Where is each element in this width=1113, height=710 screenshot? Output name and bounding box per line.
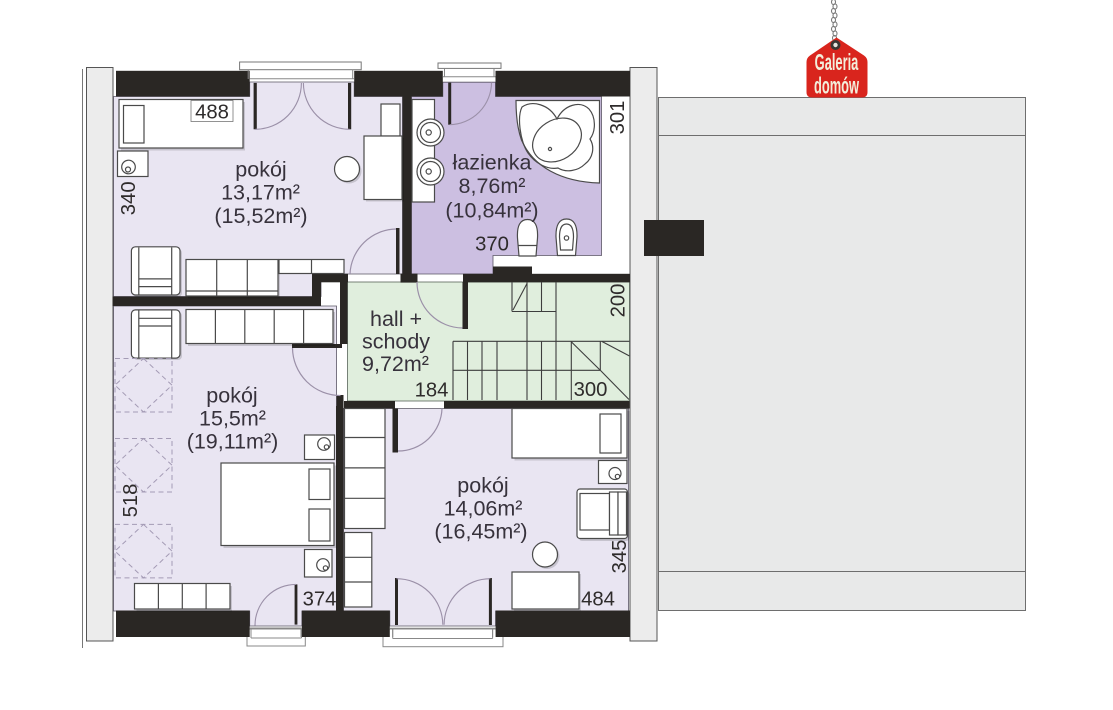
svg-text:łazienka: łazienka <box>453 151 532 175</box>
svg-text:pokój: pokój <box>235 158 286 182</box>
svg-text:8,76m²: 8,76m² <box>459 174 526 198</box>
svg-text:345: 345 <box>609 540 631 574</box>
svg-text:9,72m²: 9,72m² <box>362 352 429 376</box>
svg-text:(19,11m²): (19,11m²) <box>187 430 279 454</box>
svg-text:domów: domów <box>814 73 859 99</box>
svg-text:300: 300 <box>574 379 608 401</box>
svg-text:184: 184 <box>415 380 449 402</box>
svg-text:370: 370 <box>475 234 509 256</box>
svg-text:pokój: pokój <box>206 384 257 408</box>
svg-text:13,17m²: 13,17m² <box>221 181 300 205</box>
svg-text:(16,45m²): (16,45m²) <box>434 520 527 544</box>
svg-text:schody: schody <box>362 330 430 354</box>
svg-text:488: 488 <box>195 102 229 124</box>
svg-text:(15,52m²): (15,52m²) <box>214 204 307 228</box>
svg-text:518: 518 <box>120 484 142 518</box>
svg-text:pokój: pokój <box>457 474 508 498</box>
svg-text:484: 484 <box>581 589 615 611</box>
svg-text:301: 301 <box>607 101 629 135</box>
svg-text:200: 200 <box>608 284 630 318</box>
svg-text:(10,84m²): (10,84m²) <box>445 199 538 223</box>
svg-text:14,06m²: 14,06m² <box>444 497 523 521</box>
svg-text:374: 374 <box>303 589 337 611</box>
svg-text:340: 340 <box>118 181 140 215</box>
svg-text:hall +: hall + <box>370 307 422 331</box>
svg-text:Galeria: Galeria <box>815 49 859 75</box>
svg-text:15,5m²: 15,5m² <box>199 407 266 431</box>
